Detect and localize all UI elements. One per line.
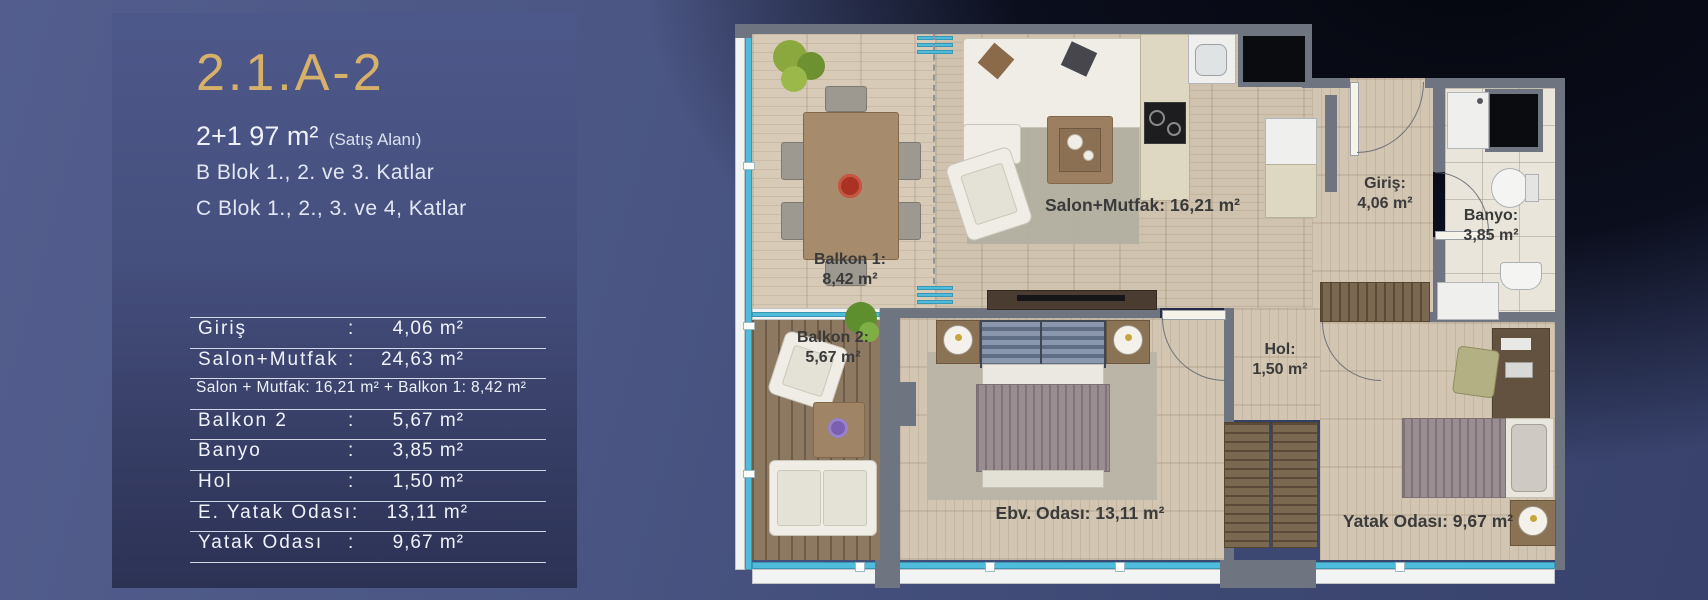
wall bbox=[1220, 560, 1316, 588]
table-row: Balkon 2 : 5,67 m² bbox=[190, 410, 546, 441]
desk-keyboard bbox=[1505, 362, 1533, 378]
unit-title: 2.1.A-2 bbox=[196, 43, 385, 103]
window-joint bbox=[743, 470, 755, 478]
fridge bbox=[1265, 118, 1317, 166]
cup bbox=[1067, 134, 1083, 150]
toilet-tank bbox=[1525, 174, 1539, 202]
sliding-door-line bbox=[933, 34, 935, 284]
headboard-split bbox=[1040, 320, 1042, 364]
window-joint bbox=[1115, 562, 1125, 572]
table-row: Banyo : 3,85 m² bbox=[190, 440, 546, 471]
double-bed-headboard bbox=[980, 320, 1106, 368]
unit-area: 2+1 97 m² bbox=[196, 121, 318, 151]
burner bbox=[1167, 122, 1181, 136]
block-info-1: B Blok 1., 2. ve 3. Katlar bbox=[196, 161, 434, 185]
tv-screen bbox=[1017, 295, 1125, 301]
plant bbox=[781, 66, 807, 92]
dining-chair bbox=[825, 86, 867, 112]
balcony-rail bbox=[752, 569, 1555, 584]
floor-plan-page: 2.1.A-2 2+1 97 m² (Satış Alanı) B Blok 1… bbox=[0, 0, 1708, 600]
double-bed-foot bbox=[982, 470, 1104, 488]
vent-bar bbox=[917, 293, 953, 297]
wall bbox=[1302, 78, 1350, 88]
sink-basin bbox=[1195, 44, 1227, 76]
lamp bbox=[943, 325, 973, 355]
shaft-void bbox=[1490, 94, 1538, 147]
single-bed-blanket bbox=[1402, 418, 1506, 498]
closet bbox=[1320, 282, 1430, 322]
toilet bbox=[1491, 168, 1529, 208]
table-row: Hol : 1,50 m² bbox=[190, 471, 546, 502]
desk-papers bbox=[1501, 338, 1531, 350]
shower-drain bbox=[1477, 98, 1483, 104]
wardrobe bbox=[1272, 422, 1318, 548]
window-joint bbox=[743, 162, 755, 170]
table-row: E. Yatak Odası : 13,11 m² bbox=[190, 502, 546, 533]
vent-bar bbox=[917, 286, 953, 290]
wall bbox=[1555, 78, 1565, 570]
vent-bar bbox=[917, 50, 953, 54]
cup bbox=[1083, 150, 1094, 161]
double-bed-blanket bbox=[976, 384, 1110, 472]
wall bbox=[1433, 88, 1445, 172]
window-joint bbox=[1395, 562, 1405, 572]
room-label-balkon-2: Balkon 2: 5,67 m² bbox=[781, 328, 885, 369]
vent-bar bbox=[917, 43, 953, 47]
sofa-cushion bbox=[777, 470, 821, 526]
wall bbox=[1325, 95, 1337, 192]
burner bbox=[1149, 110, 1165, 126]
window-joint bbox=[743, 322, 755, 330]
coffee-table-tray bbox=[1059, 128, 1101, 172]
room-label-giris: Giriş: 4,06 m² bbox=[1343, 174, 1427, 215]
window-joint bbox=[855, 562, 865, 572]
room-label-ebv-odasi: Ebv. Odası: 13,11 m² bbox=[990, 502, 1170, 524]
vent-bar bbox=[917, 300, 953, 304]
room-label-banyo: Banyo: 3,85 m² bbox=[1447, 206, 1535, 247]
bathtub bbox=[1437, 282, 1499, 320]
table-centerpiece bbox=[838, 174, 862, 198]
table-row: Yatak Odası : 9,67 m² bbox=[190, 532, 546, 563]
room-label-balkon-1: Balkon 1: 8,42 m² bbox=[798, 250, 902, 291]
wall bbox=[900, 382, 916, 426]
wall bbox=[875, 560, 900, 588]
info-card: 2.1.A-2 2+1 97 m² (Satış Alanı) B Blok 1… bbox=[112, 13, 577, 588]
unit-area-note: (Satış Alanı) bbox=[329, 130, 422, 149]
balcony-rail bbox=[735, 34, 745, 570]
pillow bbox=[1511, 424, 1547, 492]
wardrobe bbox=[1224, 422, 1270, 548]
wall bbox=[1425, 78, 1565, 88]
room-label-hol: Hol: 1,50 m² bbox=[1240, 340, 1320, 381]
room-area-table: Giriş : 4,06 m² Salon+Mutfak : 24,63 m² … bbox=[190, 317, 546, 563]
room-label-yatak-odasi: Yatak Odası: 9,67 m² bbox=[1333, 510, 1523, 532]
block-info-2: C Blok 1., 2., 3. ve 4, Katlar bbox=[196, 197, 467, 221]
desk-chair bbox=[1452, 345, 1500, 398]
sofa-cushion bbox=[823, 470, 867, 526]
floor-plan: Balkon 1: 8,42 m² Salon+Mutfak: 16,21 m²… bbox=[735, 22, 1565, 588]
shaft-void bbox=[1243, 36, 1305, 82]
table-note-row: Salon + Mutfak: 16,21 m² + Balkon 1: 8,4… bbox=[190, 379, 546, 410]
window-glass bbox=[752, 562, 1555, 569]
window-glass bbox=[745, 34, 752, 570]
table-row: Salon+Mutfak : 24,63 m² bbox=[190, 349, 546, 380]
flower bbox=[828, 418, 848, 438]
table-row: Giriş : 4,06 m² bbox=[190, 318, 546, 349]
vent-bar bbox=[917, 36, 953, 40]
kitchen-cabinet bbox=[1265, 164, 1317, 218]
bathroom-sink bbox=[1500, 262, 1542, 290]
window-joint bbox=[985, 562, 995, 572]
room-label-salon-mutfak: Salon+Mutfak: 16,21 m² bbox=[1035, 194, 1250, 216]
wall bbox=[740, 24, 1312, 34]
lamp bbox=[1113, 325, 1143, 355]
unit-area-line: 2+1 97 m² (Satış Alanı) bbox=[196, 121, 421, 152]
